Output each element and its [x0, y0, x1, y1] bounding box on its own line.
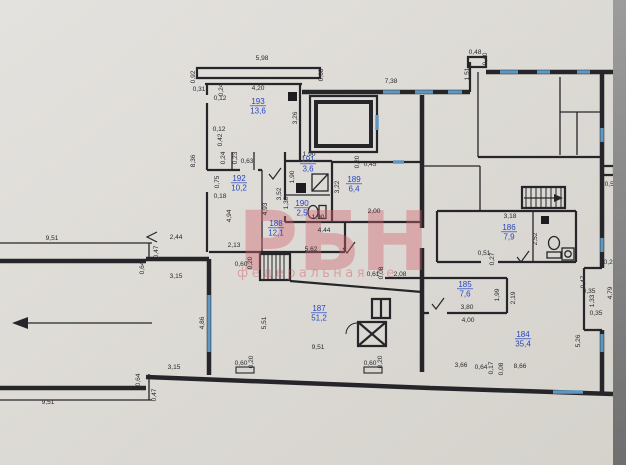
dimension-label: 0,64 — [139, 261, 146, 274]
dimension-label: 0,60 — [235, 261, 248, 268]
dimension-label: 4,79 — [607, 286, 614, 299]
dimension-label: 4,86 — [199, 316, 206, 329]
boiler-wc — [541, 216, 549, 224]
room-label-188: 18812,1 — [268, 219, 284, 238]
room-number: 184 — [516, 330, 530, 339]
dimension-label: 0,68 — [318, 68, 325, 81]
dimension-label: 1,90 — [312, 214, 325, 221]
vent-box-193 — [288, 92, 297, 101]
dimension-label: 0,47 — [153, 245, 160, 258]
dimension-label: 4,00 — [462, 317, 475, 324]
room-number: 187 — [312, 304, 326, 313]
dimension-label: 0,08 — [498, 362, 505, 375]
dimension-label: 7,38 — [385, 78, 398, 85]
dimension-label: 3,26 — [292, 111, 299, 124]
room-area: 13,6 — [250, 107, 266, 116]
dimension-label: 2,08 — [394, 271, 407, 278]
dimension-label: 1,51 — [464, 67, 471, 80]
dimension-label: 0,20 — [248, 355, 255, 368]
dimension-label: 8,66 — [514, 363, 527, 370]
dimension-label: 8,36 — [190, 154, 197, 167]
dimension-label: 2,52 — [532, 232, 539, 245]
dimension-label: 0,48 — [469, 49, 482, 56]
dimension-label: 0,47 — [151, 388, 158, 401]
dimension-label: 0,35 — [583, 288, 596, 295]
dimension-label: 3,66 — [455, 362, 468, 369]
dimension-label: 0,12 — [213, 126, 226, 133]
room-number: 189 — [347, 175, 361, 184]
dimension-label: 0,20 — [247, 256, 254, 269]
dimension-label: 0,47 — [580, 275, 587, 288]
dimension-label: 0,12 — [214, 95, 227, 102]
room-area: 7,6 — [459, 290, 471, 299]
dimension-label: 0,42 — [217, 133, 224, 146]
room-number: 185 — [458, 280, 472, 289]
dimension-label: 0,92 — [190, 70, 197, 83]
room-area: 35,4 — [515, 340, 531, 349]
dimension-label: 4,93 — [262, 202, 269, 215]
room-area: 6,4 — [348, 185, 360, 194]
dimension-label: 1,33 — [589, 294, 596, 307]
dimension-label: 4,44 — [318, 227, 331, 234]
dimension-label: 5,62 — [305, 246, 318, 253]
dimension-label: 0,60 — [364, 360, 377, 367]
room-number: 188 — [269, 219, 283, 228]
room-area: 51,2 — [311, 314, 327, 323]
dimension-label: 2,13 — [228, 242, 241, 249]
dimension-label: 3,52 — [276, 187, 283, 200]
room-number: 191 — [301, 155, 315, 164]
dimension-label: 0,60 — [235, 360, 248, 367]
dimension-label: 2,19 — [510, 291, 517, 304]
dimension-label: 5,26 — [575, 334, 582, 347]
dimension-label: 0,63 — [241, 158, 254, 165]
dimension-label: 0,40 — [482, 52, 489, 65]
room-number: 186 — [502, 223, 516, 232]
room-area: 10,2 — [231, 184, 247, 193]
dimension-label: 1,99 — [494, 288, 501, 301]
dimension-label: 9,51 — [42, 399, 55, 406]
room-label-187: 18751,2 — [311, 304, 327, 323]
dimension-label: 3,80 — [461, 304, 474, 311]
room-number: 190 — [295, 199, 309, 208]
room-area: 3,6 — [302, 165, 314, 174]
dimension-label: 2,44 — [170, 234, 183, 241]
dimension-label: 0,31 — [193, 86, 206, 93]
room-label-192: 19210,2 — [231, 174, 247, 193]
dimension-label: 1,90 — [289, 170, 296, 183]
room-number: 192 — [232, 174, 246, 183]
dimension-label: 0,64 — [135, 373, 142, 386]
dimension-label: 0,20 — [377, 355, 384, 368]
room-label-184: 18435,4 — [515, 330, 531, 349]
dimension-label: 0,18 — [214, 193, 227, 200]
dimension-label: 1,30 — [283, 196, 290, 209]
photo-edge-bar — [613, 0, 626, 465]
dimension-label: 3,18 — [504, 213, 517, 220]
dimension-label: 5,98 — [256, 55, 269, 62]
room-area: 7,9 — [503, 233, 515, 242]
dimension-label: 4,94 — [226, 209, 233, 222]
dimension-label: 3,15 — [170, 273, 183, 280]
room-number: 193 — [251, 97, 265, 106]
stove-191 — [296, 183, 306, 193]
dimension-label: 0,20 — [354, 155, 361, 168]
room-label-193: 19313,6 — [250, 97, 266, 116]
dimension-label: 0,24 — [220, 151, 227, 164]
dimension-label: 0,64 — [475, 364, 488, 371]
dimension-label: 5,51 — [261, 316, 268, 329]
dimension-label: 2,00 — [368, 208, 381, 215]
dimension-label: 0,45 — [364, 161, 377, 168]
dimension-label: 0,27 — [489, 252, 496, 265]
dimension-label: 9,51 — [46, 235, 59, 242]
dimension-label: 4,20 — [252, 85, 265, 92]
floor-plan-photo: РБН федеральная се 5,980,920,310,244,200… — [0, 0, 626, 465]
room-area: 12,1 — [268, 229, 284, 238]
dimension-label: 0,75 — [214, 175, 221, 188]
dimension-label: 0,17 — [488, 361, 495, 374]
dimension-label: 3,15 — [168, 364, 181, 371]
dimension-label: 0,35 — [590, 310, 603, 317]
dimension-label: 3,22 — [334, 180, 341, 193]
dimension-label: 0,08 — [378, 266, 385, 279]
dimension-label: 9,51 — [312, 344, 325, 351]
room-area: 2,5 — [296, 209, 308, 218]
floor-plan: РБН федеральная се 5,980,920,310,244,200… — [0, 0, 626, 465]
dimension-label: 0,23 — [232, 151, 239, 164]
